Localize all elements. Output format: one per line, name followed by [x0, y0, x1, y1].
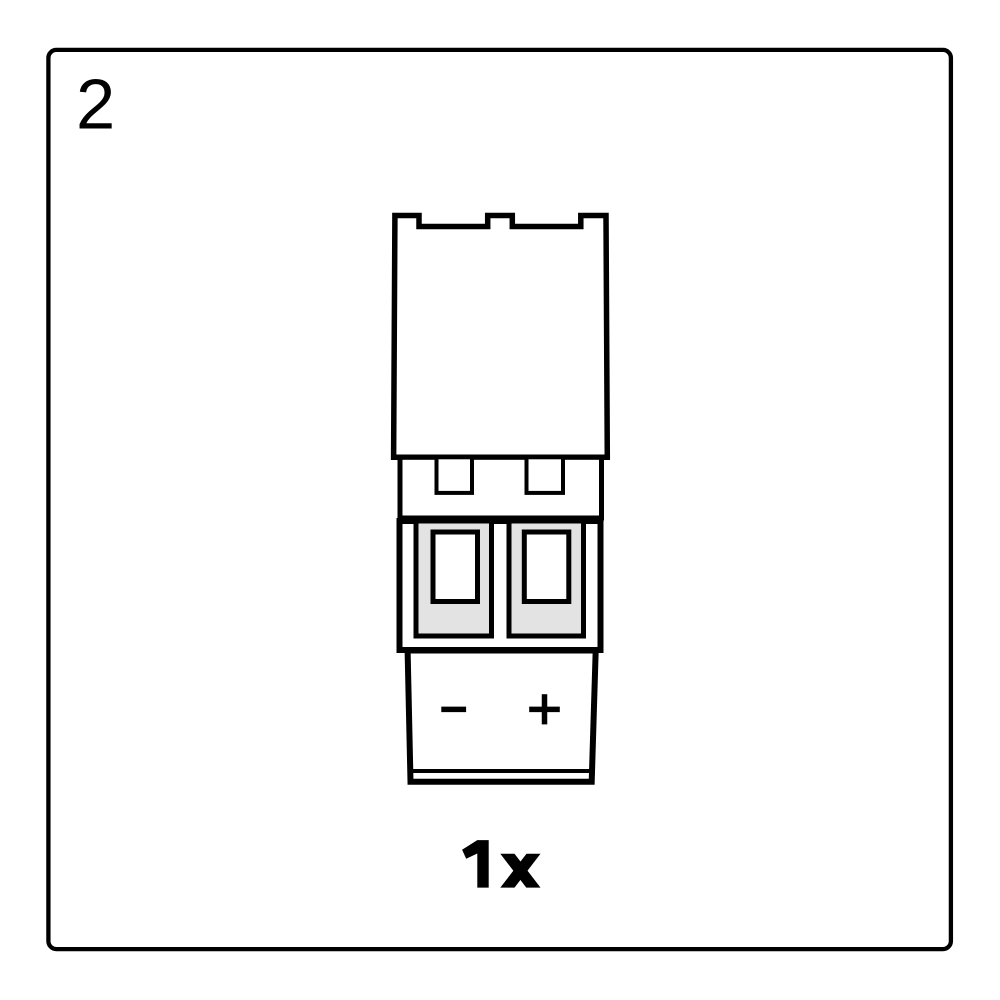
- svg-text:2: 2: [76, 65, 115, 144]
